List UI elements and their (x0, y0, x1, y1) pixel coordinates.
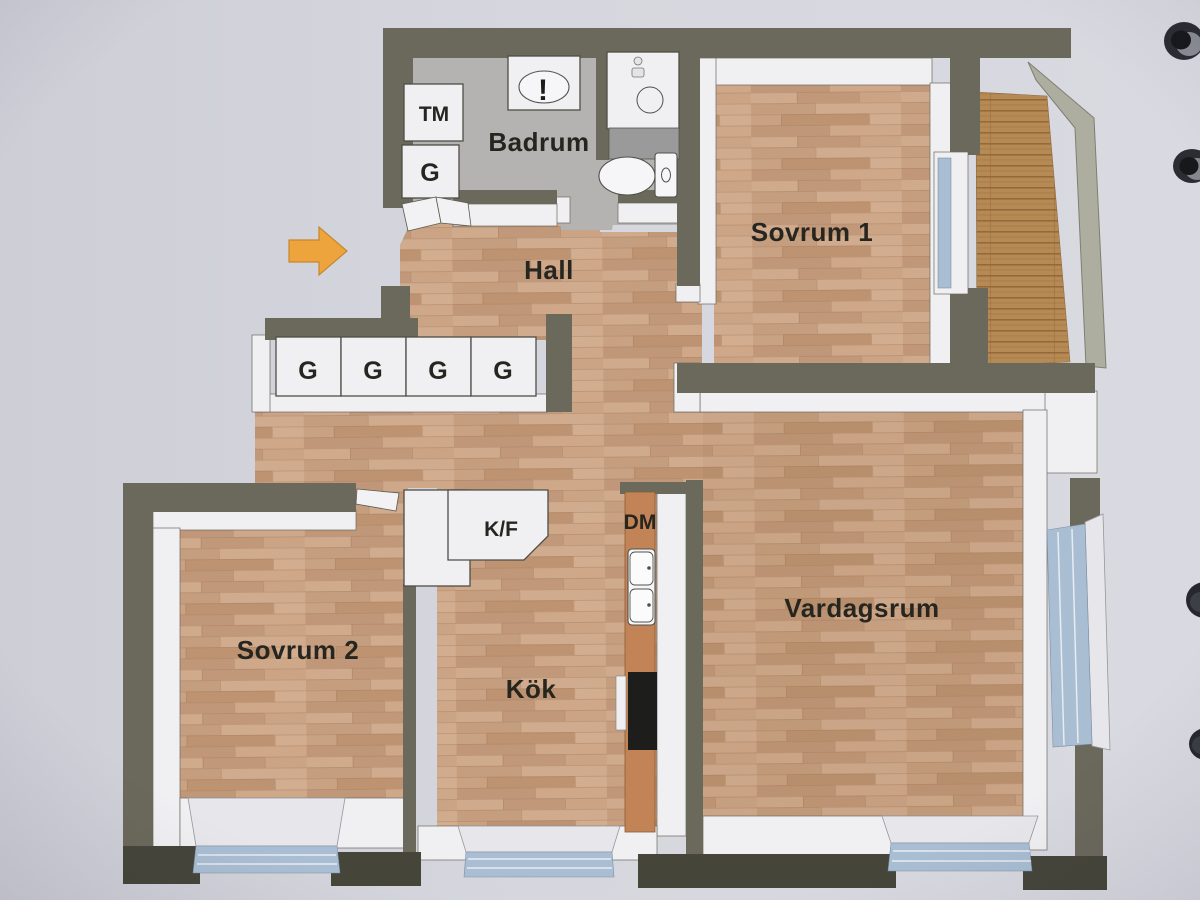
photographed-floor-plan-page: Badrum Hall Sovrum 1 Sovrum 2 Kök Vardag… (0, 0, 1200, 900)
photo-vignette (0, 0, 1200, 900)
floor-plan-canvas: Badrum Hall Sovrum 1 Sovrum 2 Kök Vardag… (0, 0, 1200, 900)
